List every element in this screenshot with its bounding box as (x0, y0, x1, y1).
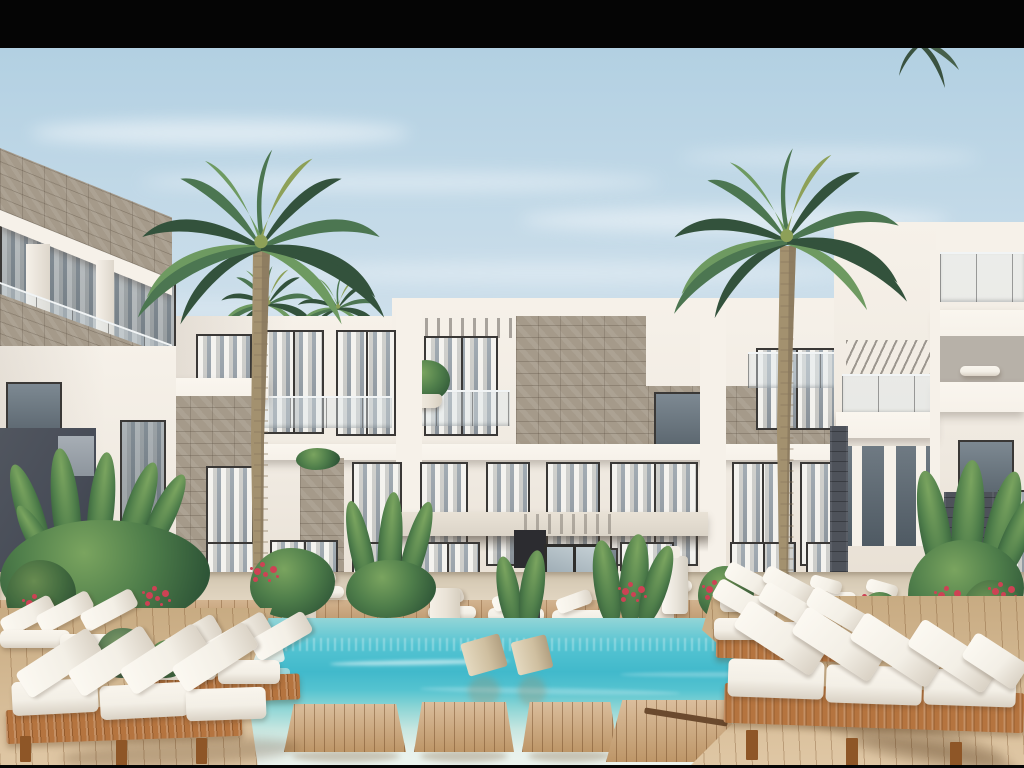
red-flowers (254, 568, 261, 575)
balcony-slab (836, 412, 936, 438)
glazing-pier (852, 446, 862, 546)
lounger-leg (20, 736, 31, 762)
post-reflection (518, 676, 546, 706)
glass-railing (842, 374, 934, 414)
swim-platform (414, 702, 514, 752)
resort-render-photo (0, 0, 1024, 768)
glass-railing (940, 252, 1024, 302)
swim-platform (284, 704, 406, 752)
lounger-leg (846, 738, 858, 768)
lounger-leg (196, 738, 207, 764)
lounger-leg (116, 740, 127, 766)
window (654, 392, 706, 446)
cloud (30, 120, 410, 146)
pergola (846, 340, 930, 374)
glazing-pier (884, 446, 896, 546)
red-flowers (622, 588, 629, 595)
parapet (936, 226, 1024, 252)
swim-platform (522, 702, 618, 752)
letterbox-top (0, 0, 1024, 48)
roof-pergola (425, 318, 520, 338)
lounge-cushion (185, 687, 266, 722)
cloud (140, 172, 660, 192)
cloud (680, 148, 980, 166)
lounger-leg (746, 730, 758, 760)
red-flowers (992, 588, 999, 595)
parapet (392, 298, 878, 310)
floor-slab (168, 444, 878, 460)
red-flowers (146, 592, 153, 599)
balcony-slab (934, 382, 1024, 412)
balcony-lounger (960, 366, 1000, 376)
cloud (240, 262, 860, 284)
window (6, 382, 62, 434)
stone-panel (516, 316, 646, 386)
balcony-slab (936, 310, 1024, 336)
post-reflection (468, 676, 500, 706)
